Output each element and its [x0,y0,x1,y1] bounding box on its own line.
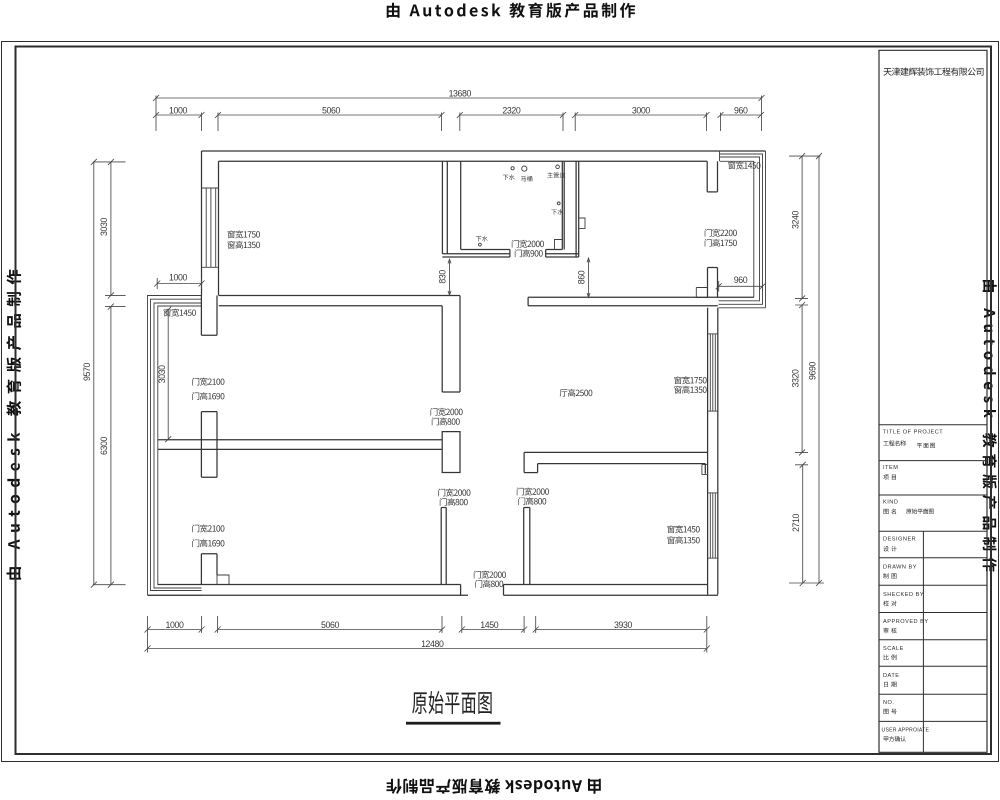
svg-text:1000: 1000 [166,620,184,630]
svg-text:3000: 3000 [632,106,650,116]
svg-text:960: 960 [734,275,748,285]
svg-text:9690: 9690 [808,362,818,380]
svg-text:830: 830 [437,270,447,284]
svg-text:5060: 5060 [321,620,339,630]
svg-text:9570: 9570 [82,363,92,381]
svg-text:6300: 6300 [99,437,109,455]
svg-text:NO.: NO. [883,700,894,706]
svg-text:DRAWN BY: DRAWN BY [883,565,917,571]
svg-text:1000: 1000 [169,273,187,283]
svg-text:3030: 3030 [99,218,109,236]
svg-text:ITEM: ITEM [883,465,898,471]
svg-text:860: 860 [577,270,587,284]
svg-text:2320: 2320 [502,106,520,116]
svg-text:3930: 3930 [614,620,632,630]
svg-text:12480: 12480 [421,639,444,649]
svg-text:1450: 1450 [480,620,498,630]
svg-text:5060: 5060 [322,106,340,116]
svg-text:DATE: DATE [883,673,900,679]
svg-text:USER APPROIATE: USER APPROIATE [882,727,930,733]
svg-text:13680: 13680 [449,89,472,99]
svg-text:3320: 3320 [791,369,801,387]
svg-text:3030: 3030 [157,365,167,383]
svg-text:2710: 2710 [791,514,801,532]
svg-text:KIND: KIND [883,499,898,505]
svg-text:DESIGNER: DESIGNER [883,537,916,543]
svg-text:960: 960 [734,106,748,116]
svg-text:APPROVED BY: APPROVED BY [883,619,929,625]
svg-text:SHECKED BY: SHECKED BY [883,592,924,598]
svg-text:1000: 1000 [169,106,187,116]
svg-text:SCALE: SCALE [883,646,904,652]
svg-text:TITLE OF PROJECT: TITLE OF PROJECT [883,430,943,436]
svg-text:3240: 3240 [791,211,801,229]
